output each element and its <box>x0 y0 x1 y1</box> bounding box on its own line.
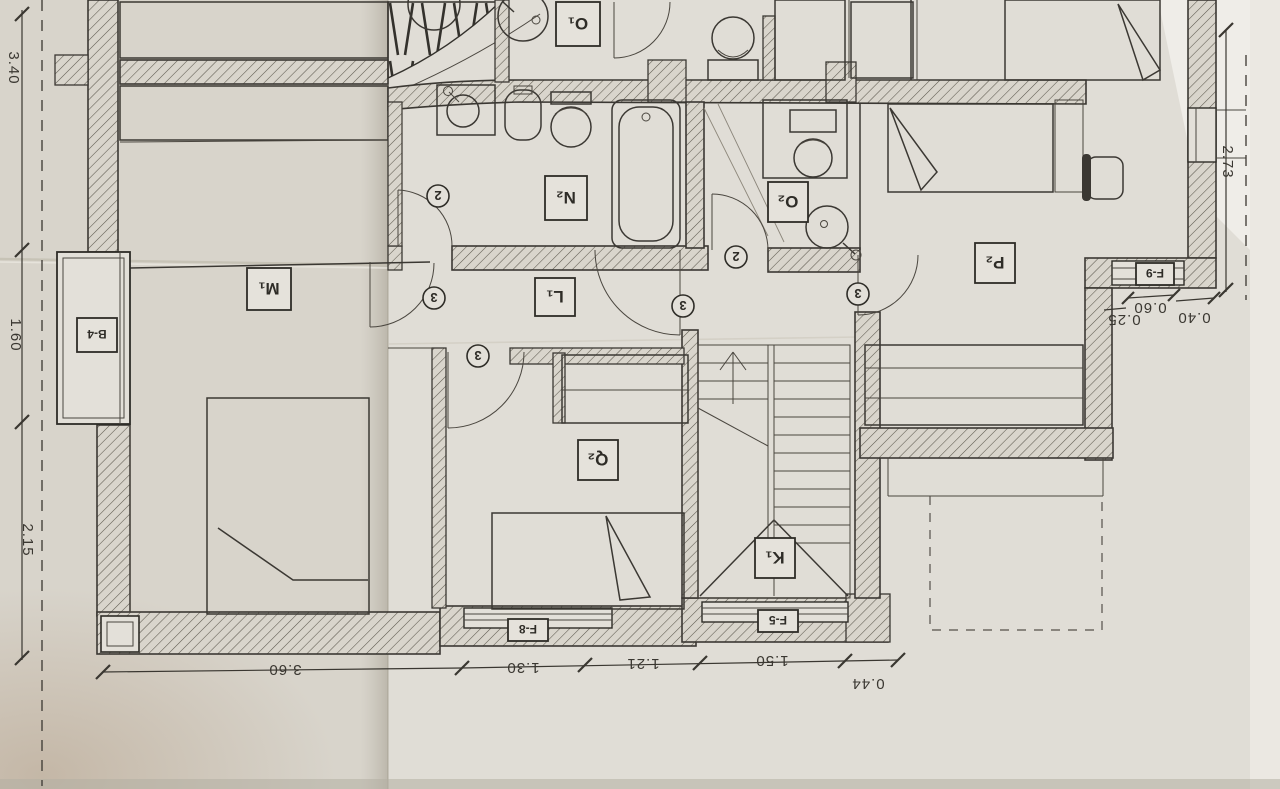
wall-mid-stub <box>388 246 402 270</box>
dim-bottom-3: 1.21 <box>626 655 659 672</box>
wall-n2-left <box>388 102 402 246</box>
wall-stair-upper <box>763 16 775 80</box>
window-f8-label: F-8 <box>519 622 537 636</box>
dim-corner-040: 0.40 <box>1177 309 1210 326</box>
wall-left-lower <box>97 425 130 616</box>
window-f5-label: F-5 <box>769 613 787 627</box>
dim-bottom-5: 0.44 <box>851 675 884 692</box>
door-number: 3 <box>679 298 686 313</box>
dim-right-1: 2.73 <box>1219 145 1236 178</box>
window-b4: B-4 <box>57 252 130 424</box>
room-label-l1: L₁ <box>546 287 563 306</box>
wall-corner-block <box>846 594 890 642</box>
room-label-m1: M₁ <box>258 279 279 298</box>
wall-o1-divider <box>495 0 509 82</box>
dim-bottom-4: 1.50 <box>755 652 788 669</box>
roof-band-divider <box>120 60 388 84</box>
room-label-o1: O₁ <box>568 14 588 33</box>
window-b4-label: B-4 <box>87 327 107 341</box>
floorplan-photo: B-4 F-8 F-5 F-9 <box>0 0 1280 789</box>
room-label-n2: N₂ <box>556 188 576 207</box>
wall-q2-left <box>432 348 446 608</box>
door-number: 2 <box>732 249 739 264</box>
wall-wardrobe-stub <box>553 353 565 423</box>
wall-mid-band-1 <box>452 246 708 270</box>
wall-mid-band-2 <box>768 248 860 272</box>
wall-pier-1 <box>648 60 686 102</box>
room-label-k1: K₁ <box>765 548 784 567</box>
room-label-p2: P₂ <box>986 253 1005 272</box>
dim-bottom-2: 1.30 <box>506 659 539 676</box>
door-number: 2 <box>434 188 441 203</box>
dim-corner-060: 0.60 <box>1133 299 1166 316</box>
wall-left-upper <box>88 0 118 252</box>
room-label-q2: Q₂ <box>588 450 609 469</box>
bottom-edge-shadow <box>0 779 1280 789</box>
door-number: 3 <box>854 286 861 301</box>
window-f9-label: F-9 <box>1146 266 1164 280</box>
room-label-o2: O₂ <box>778 192 799 211</box>
door-number: 3 <box>430 290 437 305</box>
wall-n2-o2-divider <box>686 102 704 248</box>
wall-corridor-q2 <box>510 348 684 364</box>
wall-bottom-m1 <box>97 612 440 654</box>
window-f9: F-9 <box>1112 261 1184 285</box>
dim-left-1: 3.40 <box>5 51 22 84</box>
dim-left-2: 1.60 <box>7 318 24 351</box>
door-number: 3 <box>474 348 481 363</box>
wall-below-wardrobe <box>860 428 1113 458</box>
wall-left-pillar <box>55 55 88 85</box>
paper-edge-strip <box>1250 0 1280 789</box>
dim-left-3: 2.15 <box>19 523 36 556</box>
floorplan-drawing: B-4 F-8 F-5 F-9 <box>0 0 1280 789</box>
dim-bottom-1: 3.60 <box>268 661 301 678</box>
